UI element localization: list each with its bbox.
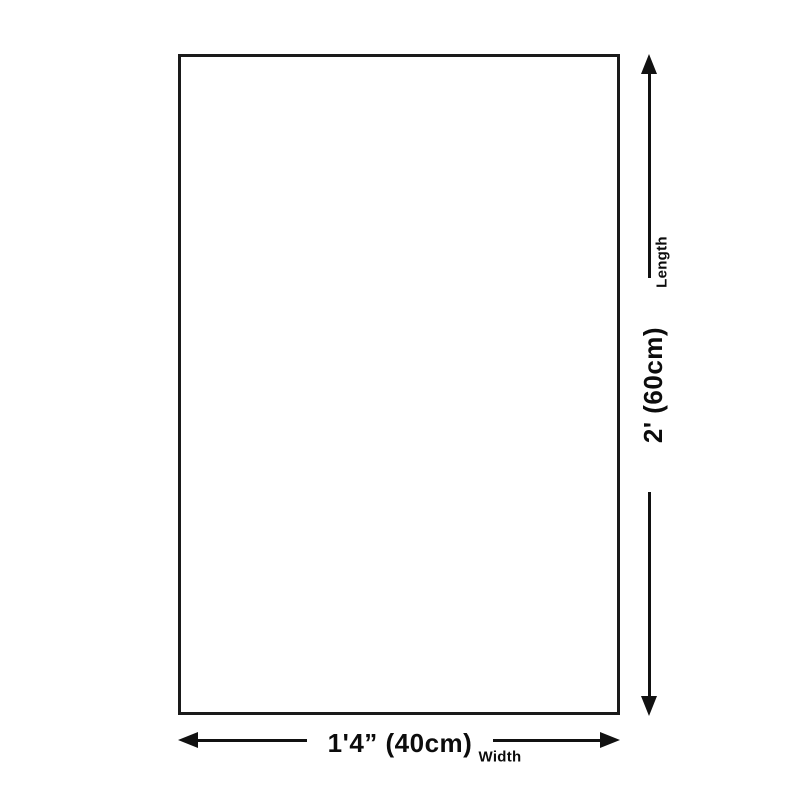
length-arrow-line-bottom — [648, 492, 651, 704]
arrow-down-icon — [641, 696, 657, 716]
dimension-diagram: Length 2' (60cm) 1'4” (40cm) Width — [0, 0, 800, 800]
length-arrow-line-top — [648, 66, 651, 278]
width-arrow-line-left — [192, 739, 307, 742]
width-axis-label: Width — [478, 750, 521, 765]
arrow-right-icon — [600, 732, 620, 748]
length-axis-label: Length — [655, 236, 670, 288]
width-arrow-line-right — [493, 739, 605, 742]
product-outline-rectangle — [178, 54, 620, 715]
length-value-label: 2' (60cm) — [640, 327, 666, 443]
width-value-label: 1'4” (40cm) — [328, 730, 473, 756]
